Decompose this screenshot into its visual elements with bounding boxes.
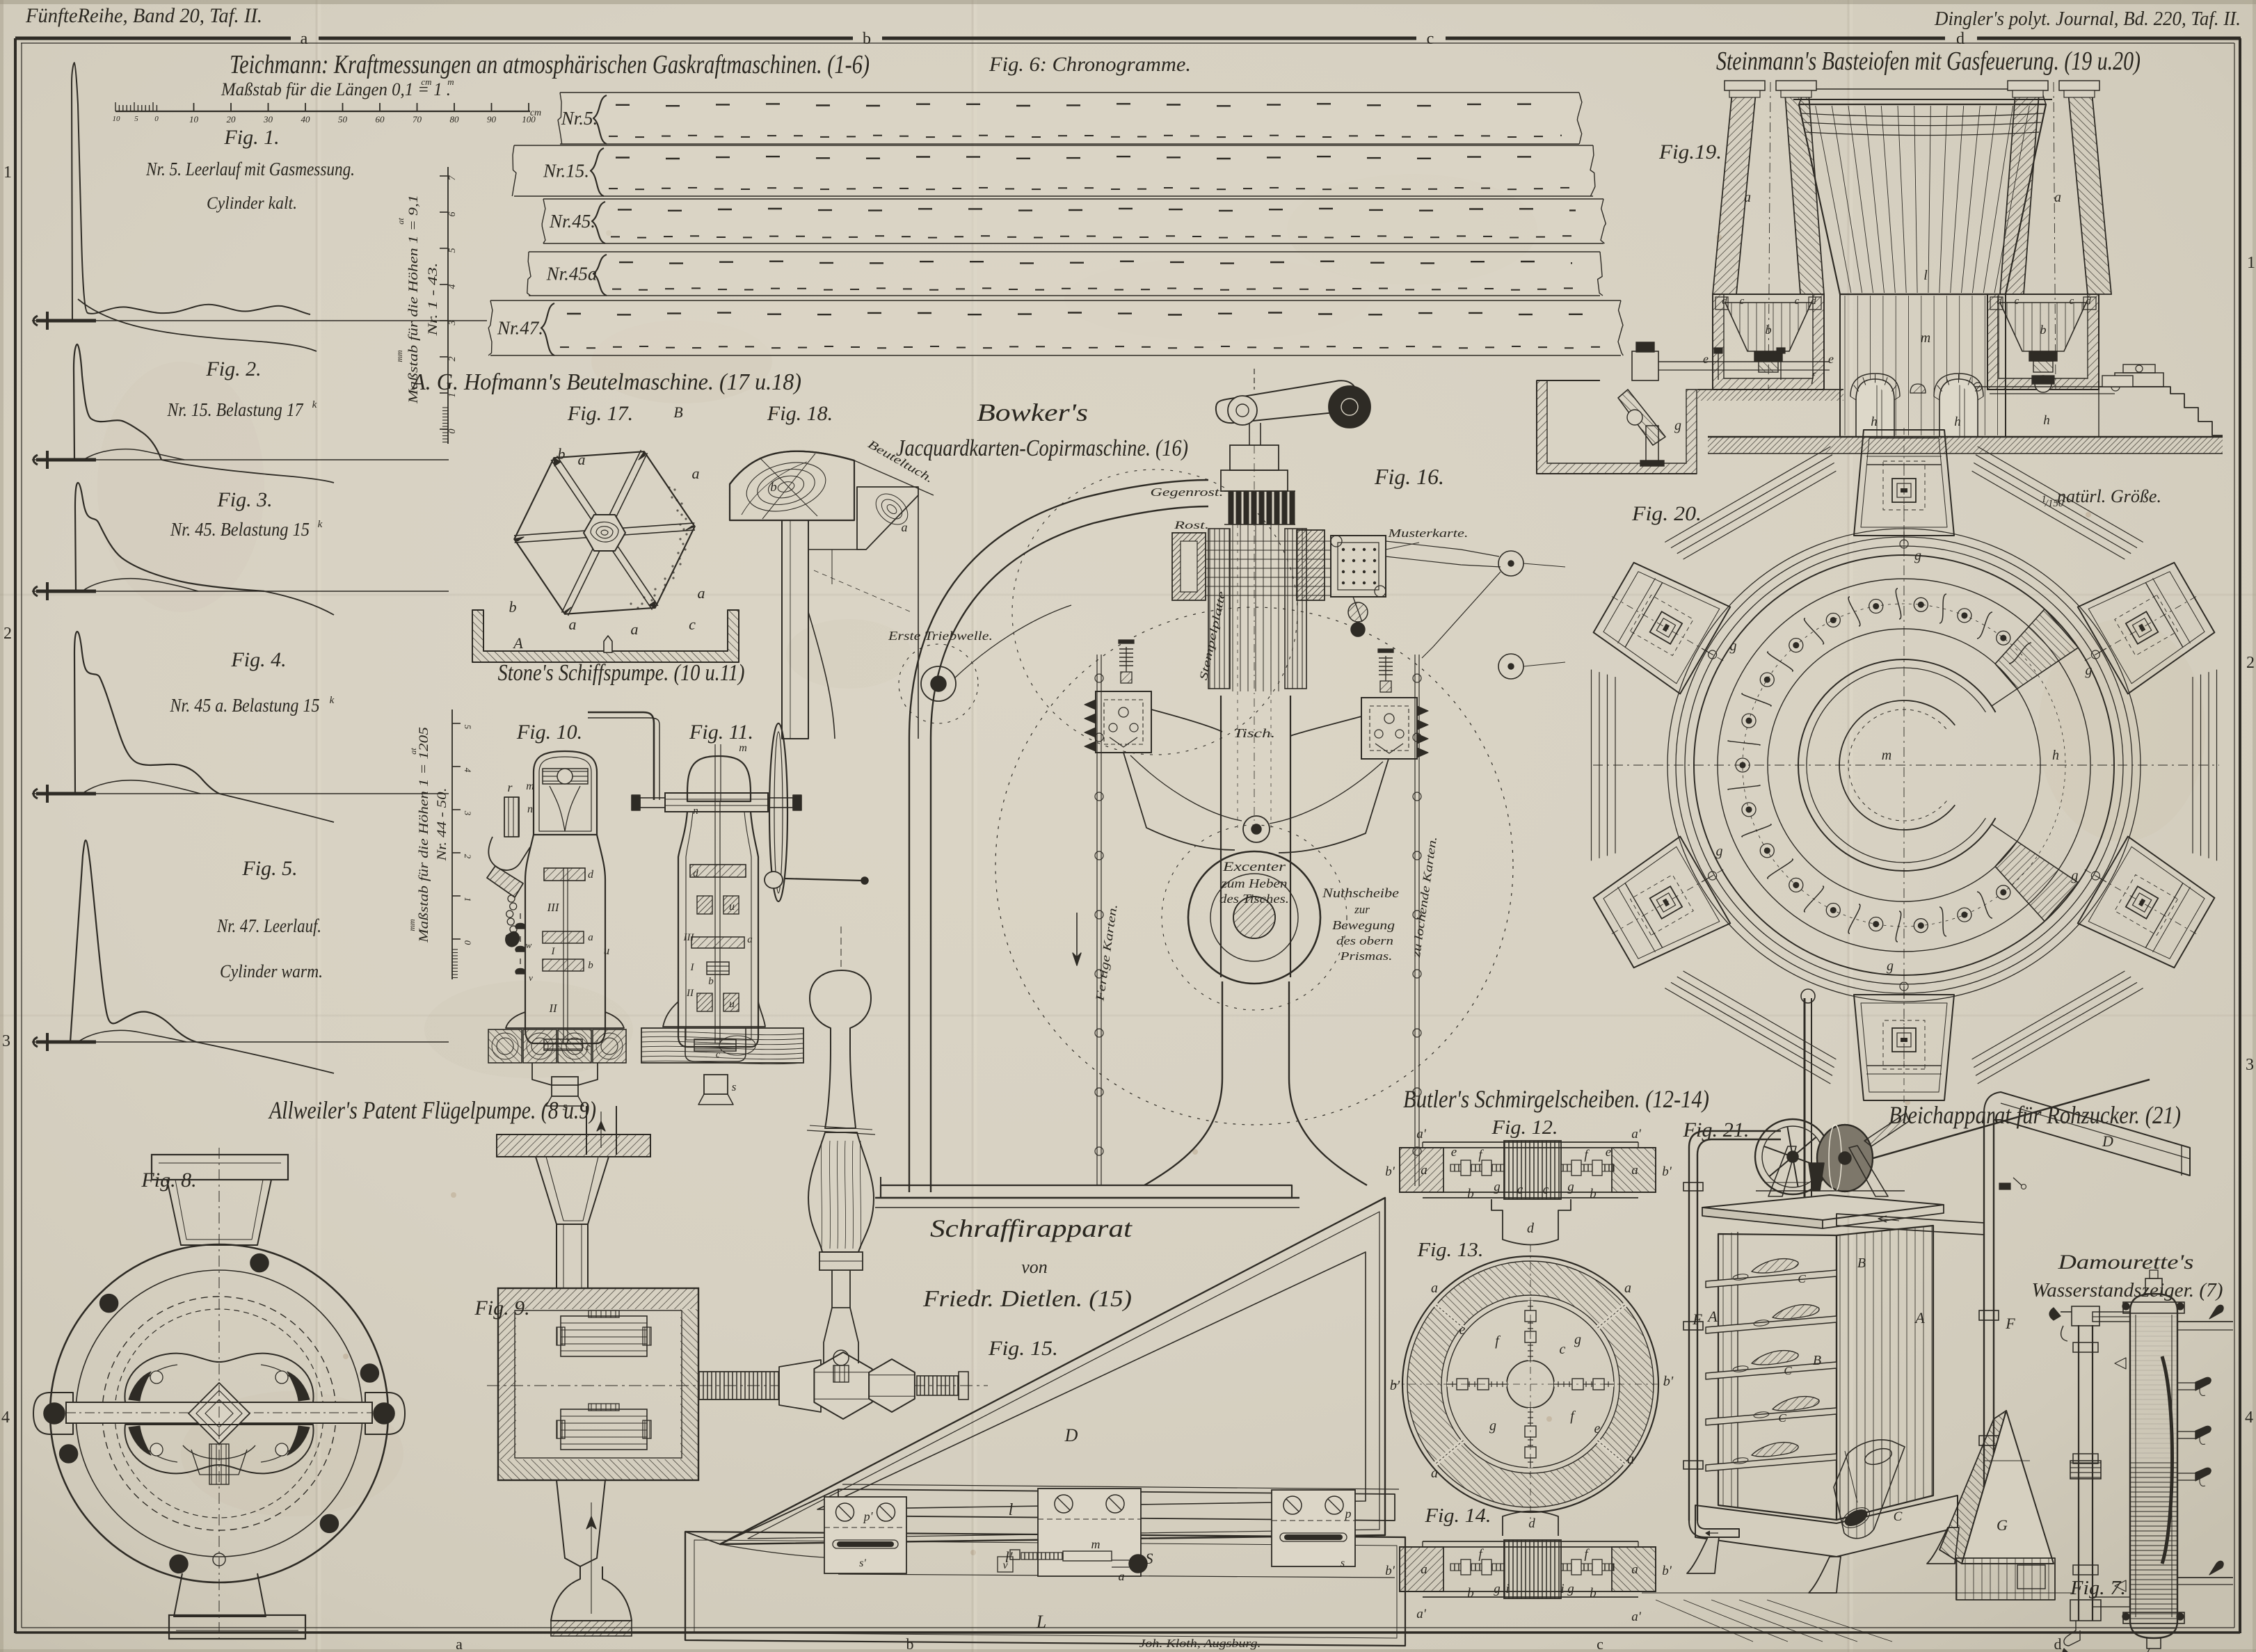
svg-text:Nr. 15. Belastung 17: Nr. 15. Belastung 17: [167, 399, 304, 420]
svg-text:b: b: [1766, 323, 1772, 337]
svg-text:L: L: [1036, 1612, 1046, 1632]
svg-text:p: p: [1344, 1507, 1352, 1521]
svg-text:0: 0: [154, 115, 159, 123]
svg-text:h: h: [1954, 415, 1961, 429]
svg-text:Nr.5.: Nr.5.: [561, 108, 598, 129]
svg-text:Fig.19.: Fig.19.: [1658, 141, 1722, 163]
svg-text:b: b: [558, 445, 566, 463]
svg-text:mm: mm: [407, 919, 417, 931]
svg-text:7: 7: [447, 175, 458, 181]
svg-text:Fig. 10.: Fig. 10.: [516, 721, 582, 744]
svg-text:5: 5: [463, 725, 473, 730]
svg-text:b': b': [1385, 1164, 1395, 1179]
svg-text:e: e: [1828, 352, 1834, 366]
svg-text:Fig. 13.: Fig. 13.: [1416, 1240, 1483, 1261]
svg-text:n: n: [693, 805, 698, 817]
svg-text:d: d: [693, 868, 698, 879]
svg-text:g: g: [1494, 1582, 1501, 1596]
svg-text:b: b: [863, 30, 871, 48]
svg-text:A: A: [1914, 1309, 1925, 1326]
svg-text:b': b': [1662, 1164, 1672, 1179]
svg-text:Fig. 6: Chronogramme.: Fig. 6: Chronogramme.: [989, 53, 1191, 76]
svg-text:g: g: [2086, 663, 2093, 678]
svg-text:G: G: [1997, 1516, 2008, 1534]
svg-text:a: a: [747, 934, 753, 945]
svg-text:A. G. Hofmann's Beutelmaschine: A. G. Hofmann's Beutelmaschine. (17 u.18…: [410, 369, 801, 395]
svg-text:g: g: [1489, 1418, 1496, 1434]
svg-text:A: A: [512, 634, 523, 652]
svg-text:D: D: [1064, 1425, 1078, 1445]
svg-text:Nr. 47. Leerlauf.: Nr. 47. Leerlauf.: [216, 915, 321, 936]
svg-text:a: a: [1631, 1163, 1638, 1178]
svg-text:Teichmann: Kraftmessungen an a: Teichmann: Kraftmessungen an atmosphäris…: [230, 50, 870, 79]
svg-text:B: B: [673, 403, 682, 421]
svg-text:c: c: [1560, 1342, 1566, 1357]
svg-text:a: a: [1631, 1562, 1638, 1577]
svg-text:c: c: [689, 616, 696, 633]
svg-text:Nr. 1 - 43.: Nr. 1 - 43.: [426, 263, 440, 337]
svg-text:F: F: [2005, 1315, 2015, 1332]
svg-text:B: B: [1857, 1256, 1866, 1271]
svg-text:l: l: [1009, 1501, 1014, 1519]
svg-text:c: c: [1795, 296, 1800, 307]
svg-text:k: k: [318, 519, 323, 530]
svg-text:II: II: [686, 988, 694, 999]
svg-text:Fig. 18.: Fig. 18.: [767, 402, 833, 425]
svg-text:2: 2: [3, 625, 12, 643]
svg-text:cm: cm: [421, 77, 431, 87]
svg-text:a: a: [1744, 190, 1751, 205]
svg-text:a: a: [1624, 1281, 1631, 1296]
svg-text:g: g: [1730, 639, 1737, 654]
svg-text:c: c: [1543, 1182, 1549, 1197]
svg-text:Fig. 20.: Fig. 20.: [1631, 502, 1702, 525]
svg-text:a: a: [1431, 1281, 1438, 1296]
svg-text:b: b: [708, 976, 714, 987]
svg-text:e: e: [1459, 1322, 1466, 1338]
svg-text:b: b: [1467, 1586, 1474, 1601]
svg-text:g: g: [1674, 418, 1681, 433]
svg-text:s: s: [732, 1080, 737, 1093]
svg-text:10: 10: [189, 114, 199, 125]
svg-text:Bewegung: Bewegung: [1332, 918, 1395, 932]
svg-text:Bleichapparat für Rohzucker. (: Bleichapparat für Rohzucker. (21): [1889, 1101, 2181, 1129]
svg-text:b: b: [906, 1635, 914, 1652]
svg-text:d: d: [1722, 296, 1727, 307]
svg-text:3: 3: [447, 321, 458, 326]
svg-text:b: b: [1590, 1187, 1597, 1201]
svg-text:2: 2: [447, 357, 458, 362]
svg-text:Nr.47.: Nr.47.: [497, 318, 543, 339]
svg-text:C: C: [1798, 1272, 1806, 1285]
svg-text:d: d: [1528, 1516, 1535, 1531]
svg-text:c: c: [1597, 1635, 1603, 1652]
svg-text:h: h: [2052, 748, 2059, 763]
svg-text:Musterkarte.: Musterkarte.: [1387, 527, 1468, 540]
svg-text:g: g: [1567, 1180, 1574, 1194]
svg-text:e: e: [1451, 1145, 1457, 1160]
svg-text:c: c: [1427, 30, 1434, 48]
svg-text:cm: cm: [530, 108, 541, 118]
svg-text:40: 40: [301, 114, 311, 125]
svg-text:2: 2: [2246, 654, 2255, 672]
svg-text:a: a: [902, 520, 908, 534]
svg-text:Fig. 1.: Fig. 1.: [223, 126, 279, 149]
svg-text:Fig. 16.: Fig. 16.: [1374, 464, 1444, 489]
svg-text:a: a: [1421, 1163, 1427, 1178]
svg-text:g: g: [1887, 959, 1894, 974]
svg-text:Gegenrost.: Gegenrost.: [1151, 486, 1224, 499]
svg-text:Allweiler's Patent Flügelpumpe: Allweiler's Patent Flügelpumpe. (8 u.9): [268, 1096, 596, 1124]
svg-text:50: 50: [338, 114, 348, 125]
svg-text:w: w: [526, 940, 532, 950]
svg-text:b: b: [588, 960, 593, 971]
svg-text:a: a: [456, 1635, 463, 1652]
svg-text:h: h: [2043, 413, 2050, 428]
svg-text:Fig. 4.: Fig. 4.: [230, 648, 286, 671]
svg-text:Fig. 5.: Fig. 5.: [241, 857, 297, 880]
svg-text:Jacquardkarten-Copirmaschine.: Jacquardkarten-Copirmaschine. (16): [896, 435, 1188, 461]
svg-text:p': p': [863, 1509, 874, 1523]
svg-text:4: 4: [1, 1409, 10, 1427]
svg-text:a': a': [1631, 1610, 1642, 1624]
svg-text:60: 60: [376, 114, 385, 125]
svg-text:k: k: [330, 695, 335, 706]
svg-text:I: I: [690, 962, 695, 973]
svg-text:Wasserstandszeiger. (7): Wasserstandszeiger. (7): [2032, 1279, 2223, 1301]
svg-text:m: m: [1091, 1537, 1101, 1551]
svg-text:n: n: [527, 803, 533, 815]
svg-text:des obern: des obern: [1336, 934, 1393, 947]
svg-text:b': b': [1390, 1378, 1400, 1393]
svg-text:Maßstab für die Höhen 1 =: Maßstab für die Höhen 1 = 1205: [417, 727, 431, 943]
svg-text:i: i: [1560, 1582, 1564, 1596]
svg-text:l: l: [1923, 268, 1928, 283]
svg-text:b': b': [1662, 1564, 1672, 1578]
svg-text:g: g: [1567, 1582, 1574, 1596]
svg-text:2: 2: [463, 854, 473, 859]
svg-text:a': a': [1416, 1607, 1427, 1621]
svg-text:4: 4: [447, 284, 458, 289]
svg-text:Nr.15.: Nr.15.: [543, 161, 589, 182]
svg-text:I: I: [551, 946, 556, 957]
svg-text:Dingler's polyt. Journal, Bd.: Dingler's polyt. Journal, Bd. 220, Taf. …: [1934, 8, 2241, 30]
svg-text:e: e: [1703, 352, 1709, 366]
svg-text:m: m: [526, 780, 534, 792]
svg-text:Fig. 21.: Fig. 21.: [1682, 1118, 1749, 1141]
svg-text:d: d: [588, 869, 594, 881]
svg-text:A: A: [1706, 1308, 1718, 1325]
svg-text:Stone's Schiffspumpe. (10 u.11: Stone's Schiffspumpe. (10 u.11): [498, 660, 745, 686]
svg-text:III: III: [547, 901, 560, 914]
svg-text:d: d: [1811, 296, 1816, 307]
svg-text:c: c: [1740, 296, 1745, 307]
svg-text:b: b: [509, 598, 517, 616]
svg-text:a: a: [631, 620, 639, 638]
svg-text:Steinmann's Basteiofen mit Gas: Steinmann's Basteiofen mit Gasfeuerung. …: [1716, 47, 2141, 76]
svg-text:u: u: [729, 901, 735, 913]
svg-text:Cylinder kalt.: Cylinder kalt.: [207, 194, 297, 213]
svg-text:Erste Triebwelle.: Erste Triebwelle.: [888, 629, 993, 643]
svg-text:30: 30: [263, 114, 273, 125]
svg-text:m: m: [739, 742, 747, 754]
svg-text:m: m: [447, 77, 454, 87]
svg-text:Bowker's: Bowker's: [977, 399, 1088, 426]
svg-text:Nuthscheibe: Nuthscheibe: [1322, 886, 1399, 901]
svg-text:0: 0: [463, 940, 473, 945]
svg-text:m: m: [1921, 330, 1930, 346]
svg-text:g: g: [1574, 1332, 1581, 1347]
svg-text:5: 5: [134, 115, 138, 123]
svg-text:at: at: [396, 218, 406, 225]
svg-text:Fig. 12.: Fig. 12.: [1491, 1117, 1558, 1139]
svg-text:Fig. 14.: Fig. 14.: [1424, 1505, 1491, 1527]
svg-text:4: 4: [463, 768, 473, 773]
svg-text:b': b': [1385, 1564, 1395, 1578]
svg-text:Excenter: Excenter: [1222, 860, 1286, 874]
svg-text:c: c: [716, 1050, 721, 1060]
svg-text:v: v: [1002, 1559, 1008, 1571]
svg-text:10: 10: [113, 115, 121, 123]
svg-text:c: c: [1517, 1182, 1523, 1197]
svg-text:90: 90: [487, 114, 497, 125]
svg-text:b: b: [1590, 1586, 1597, 1601]
svg-text:a: a: [578, 451, 586, 468]
svg-text:s: s: [1341, 1557, 1345, 1569]
svg-text:Fig. 3.: Fig. 3.: [216, 488, 272, 511]
svg-text:i: i: [1505, 1582, 1509, 1596]
svg-text:C: C: [1784, 1364, 1792, 1377]
svg-text:g: g: [2072, 868, 2079, 883]
svg-text:b': b': [1663, 1374, 1674, 1389]
svg-text:s': s': [859, 1557, 866, 1569]
svg-text:Nr. 44 - 50.: Nr. 44 - 50.: [435, 788, 449, 862]
svg-text:1: 1: [3, 163, 12, 182]
svg-text:c: c: [2015, 296, 2019, 307]
svg-text:D: D: [2102, 1132, 2113, 1150]
svg-text:Damourette's: Damourette's: [2057, 1251, 2193, 1274]
svg-text:a: a: [1627, 1452, 1634, 1467]
svg-text:FünfteReihe, Band 20, Taf. II.: FünfteReihe, Band 20, Taf. II.: [25, 4, 262, 27]
svg-text:Maßstab für die Längen 0,1 =: Maßstab für die Längen 0,1 = 1 .: [221, 79, 451, 99]
svg-text:des Tisches.: des Tisches.: [1219, 892, 1289, 906]
svg-text:Schraffirapparat: Schraffirapparat: [930, 1214, 1133, 1242]
svg-text:a: a: [1421, 1562, 1427, 1577]
svg-text:a: a: [569, 616, 577, 633]
svg-text:a: a: [1431, 1466, 1438, 1481]
svg-text:80: 80: [450, 114, 460, 125]
svg-text:d: d: [2054, 1635, 2062, 1652]
svg-text:b: b: [1467, 1187, 1474, 1201]
svg-text:a: a: [588, 932, 593, 943]
svg-text:Fig. 11.: Fig. 11.: [689, 721, 753, 744]
svg-text:a: a: [2054, 190, 2061, 205]
svg-text:b: b: [2040, 323, 2047, 337]
svg-text:Nr.45a: Nr.45a: [546, 264, 598, 284]
svg-text:Nr. 5. Leerlauf mit Gasmessung: Nr. 5. Leerlauf mit Gasmessung.: [145, 159, 355, 179]
svg-text:e: e: [1594, 1421, 1601, 1436]
svg-text:d: d: [1527, 1221, 1535, 1236]
svg-text:a: a: [692, 465, 700, 482]
svg-text:natürl. Größe.: natürl. Größe.: [2057, 486, 2161, 506]
svg-text:Nr.45.: Nr.45.: [549, 211, 595, 232]
svg-text:C: C: [1778, 1411, 1786, 1425]
svg-text:von: von: [1021, 1257, 1048, 1277]
svg-text:b: b: [770, 480, 777, 495]
svg-text:u: u: [729, 998, 735, 1010]
svg-text:g: g: [1716, 844, 1723, 859]
svg-text:S: S: [1146, 1550, 1153, 1567]
svg-text:r: r: [507, 780, 513, 794]
svg-text:h: h: [1871, 415, 1878, 429]
svg-text:Rost.: Rost.: [1173, 520, 1209, 531]
svg-text:a': a': [1631, 1127, 1642, 1141]
svg-text:a: a: [1119, 1569, 1125, 1583]
svg-text:70: 70: [413, 114, 422, 125]
svg-text:Friedr. Dietlen. (15): Friedr. Dietlen. (15): [922, 1286, 1132, 1312]
svg-text:g: g: [1914, 548, 1921, 563]
svg-text:Prismas.: Prismas.: [1339, 949, 1392, 963]
svg-text:Nr. 45 a. Belastung 15: Nr. 45 a. Belastung 15: [170, 695, 320, 716]
svg-text:a: a: [301, 30, 308, 48]
svg-text:m: m: [1882, 748, 1891, 763]
svg-text:at: at: [408, 748, 418, 755]
svg-text:3: 3: [463, 810, 473, 816]
svg-text:zur: zur: [1354, 903, 1370, 916]
svg-text:II: II: [548, 1002, 558, 1015]
svg-text:3: 3: [2, 1032, 10, 1050]
svg-text:B: B: [1813, 1353, 1821, 1368]
svg-text:a': a': [1416, 1127, 1427, 1141]
svg-text:mm: mm: [394, 350, 404, 362]
svg-text:Nr. 45. Belastung 15: Nr. 45. Belastung 15: [170, 519, 310, 540]
svg-text:20: 20: [227, 114, 237, 125]
svg-text:d: d: [2086, 296, 2091, 307]
svg-text:g: g: [1494, 1180, 1501, 1194]
svg-text:3: 3: [2246, 1056, 2254, 1074]
svg-text:4: 4: [2245, 1409, 2253, 1427]
svg-text:1: 1: [2247, 254, 2255, 272]
svg-text:a: a: [698, 584, 705, 602]
svg-text:1: 1: [463, 897, 473, 902]
svg-text:zum Heben: zum Heben: [1220, 876, 1287, 890]
svg-text:6: 6: [447, 212, 458, 217]
svg-text:C: C: [1894, 1509, 1903, 1524]
svg-text:5: 5: [447, 248, 458, 253]
svg-text:Fig. 2.: Fig. 2.: [205, 358, 261, 380]
svg-text:d: d: [1956, 30, 1965, 48]
svg-text:v: v: [529, 972, 533, 983]
svg-text:c: c: [2070, 296, 2074, 307]
svg-text:0: 0: [447, 429, 458, 434]
svg-text:k: k: [312, 399, 317, 410]
svg-text:Butler's Schmirgelscheiben. (1: Butler's Schmirgelscheiben. (12-14): [1403, 1085, 1709, 1113]
svg-text:Fig. 15.: Fig. 15.: [988, 1337, 1058, 1360]
svg-text:u: u: [604, 944, 610, 957]
svg-text:Fig. 17.: Fig. 17.: [567, 402, 633, 425]
svg-text:F: F: [1692, 1310, 1702, 1328]
svg-text:e: e: [1606, 1145, 1611, 1160]
svg-text:Cylinder warm.: Cylinder warm.: [220, 961, 323, 981]
